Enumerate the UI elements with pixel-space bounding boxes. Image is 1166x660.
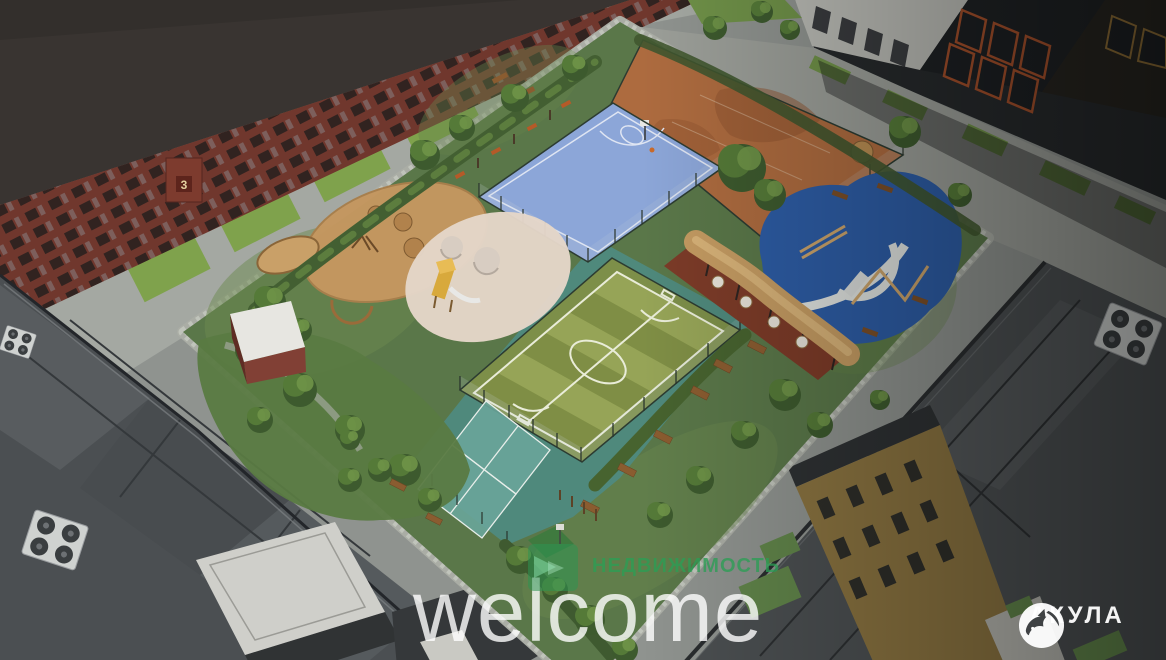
- courtyard-aerial-render: 3: [0, 0, 1166, 660]
- shadow-overlay: [0, 0, 1166, 660]
- render-scene: 3: [0, 0, 1166, 660]
